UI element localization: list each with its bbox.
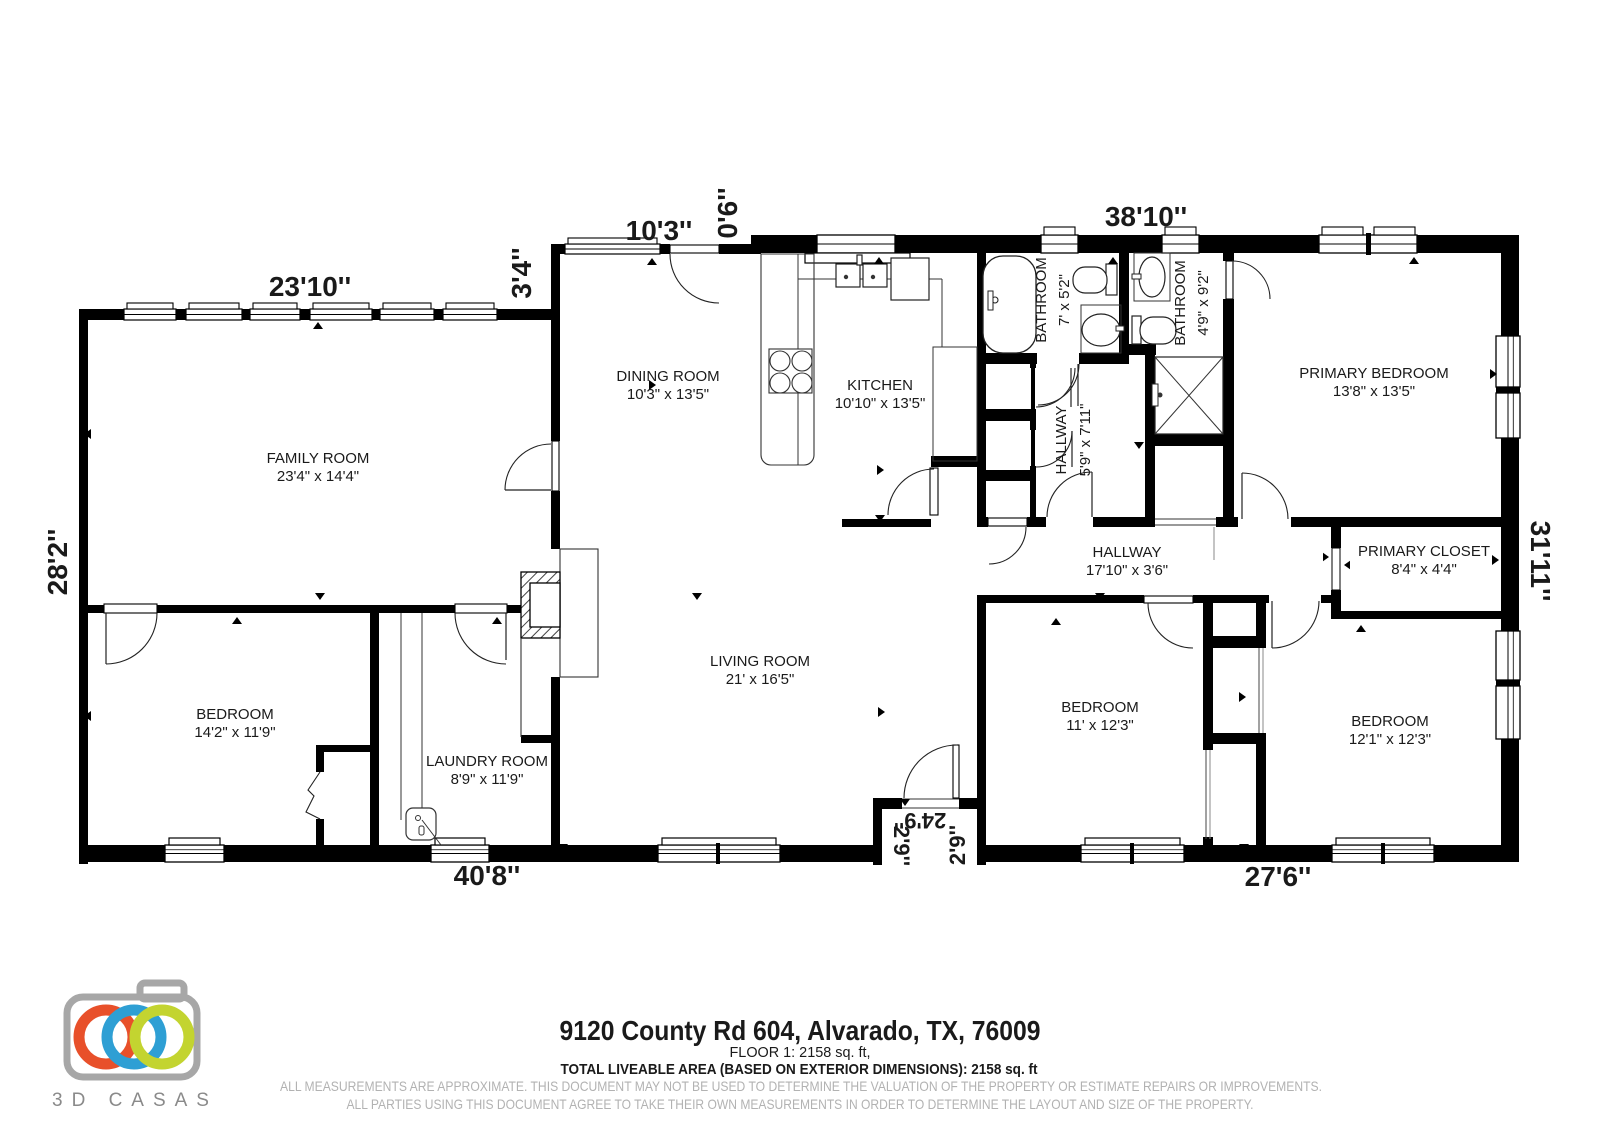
svg-text:BEDROOM: BEDROOM <box>196 706 274 723</box>
svg-text:8'4" x 4'4": 8'4" x 4'4" <box>1391 561 1457 578</box>
svg-text:10'3'': 10'3'' <box>626 215 693 246</box>
svg-text:LAUNDRY ROOM: LAUNDRY ROOM <box>426 753 548 770</box>
svg-text:31'11'': 31'11'' <box>1525 521 1556 602</box>
svg-text:11' x 12'3": 11' x 12'3" <box>1066 717 1134 734</box>
svg-text:21' x 16'5": 21' x 16'5" <box>726 671 795 688</box>
svg-text:3D CASAS: 3D CASAS <box>52 1090 218 1111</box>
svg-text:HALLWAY: HALLWAY <box>1093 544 1162 561</box>
svg-text:23'10'': 23'10'' <box>269 271 351 302</box>
svg-text:14'2" x 11'9": 14'2" x 11'9" <box>194 724 275 741</box>
svg-text:12'1" x 12'3": 12'1" x 12'3" <box>1349 731 1431 748</box>
svg-text:10'3" x 13'5": 10'3" x 13'5" <box>627 386 709 403</box>
svg-text:40'8'': 40'8'' <box>454 860 521 891</box>
svg-text:10'10" x 13'5": 10'10" x 13'5" <box>835 395 926 412</box>
svg-text:BEDROOM: BEDROOM <box>1061 699 1139 716</box>
svg-text:FAMILY ROOM: FAMILY ROOM <box>267 450 370 467</box>
svg-text:28'2'': 28'2'' <box>42 529 73 596</box>
svg-text:2'9'': 2'9'' <box>889 826 914 866</box>
svg-text:HALLWAY: HALLWAY <box>1053 406 1070 475</box>
svg-text:8'9" x 11'9": 8'9" x 11'9" <box>451 771 524 788</box>
svg-text:38'10'': 38'10'' <box>1105 201 1187 232</box>
svg-text:PRIMARY BEDROOM: PRIMARY BEDROOM <box>1299 365 1448 382</box>
svg-text:0'6'': 0'6'' <box>712 187 743 238</box>
svg-text:BEDROOM: BEDROOM <box>1351 713 1429 730</box>
svg-text:5'9" x 7'11": 5'9" x 7'11" <box>1077 404 1094 477</box>
svg-text:27'6'': 27'6'' <box>1245 861 1312 892</box>
svg-text:3'4'': 3'4'' <box>506 247 537 298</box>
svg-text:BATHROOM: BATHROOM <box>1033 257 1050 343</box>
svg-text:4'9" x 9'2": 4'9" x 9'2" <box>1195 270 1212 336</box>
svg-text:ALL PARTIES USING THIS DOCUMEN: ALL PARTIES USING THIS DOCUMENT AGREE TO… <box>347 1096 1254 1112</box>
svg-text:23'4" x 14'4": 23'4" x 14'4" <box>277 468 359 485</box>
svg-text:FLOOR 1: 2158 sq. ft,: FLOOR 1: 2158 sq. ft, <box>730 1044 871 1061</box>
svg-text:KITCHEN: KITCHEN <box>847 377 913 394</box>
svg-text:BATHROOM: BATHROOM <box>1172 260 1189 346</box>
svg-text:2'9'': 2'9'' <box>945 825 970 865</box>
svg-text:TOTAL LIVEABLE AREA (BASED ON: TOTAL LIVEABLE AREA (BASED ON EXTERIOR D… <box>561 1061 1038 1078</box>
svg-text:DINING ROOM: DINING ROOM <box>616 368 719 385</box>
svg-text:PRIMARY CLOSET: PRIMARY CLOSET <box>1358 543 1490 560</box>
svg-text:LIVING ROOM: LIVING ROOM <box>710 653 810 670</box>
svg-text:ALL MEASUREMENTS ARE APPROXIMA: ALL MEASUREMENTS ARE APPROXIMATE. THIS D… <box>280 1078 1322 1094</box>
svg-text:17'10" x 3'6": 17'10" x 3'6" <box>1086 562 1168 579</box>
svg-text:9120 County Rd 604, Alvarado,: 9120 County Rd 604, Alvarado, TX, 76009 <box>560 1015 1041 1046</box>
svg-text:13'8" x 13'5": 13'8" x 13'5" <box>1333 383 1415 400</box>
svg-text:7' x 5'2": 7' x 5'2" <box>1056 274 1073 326</box>
